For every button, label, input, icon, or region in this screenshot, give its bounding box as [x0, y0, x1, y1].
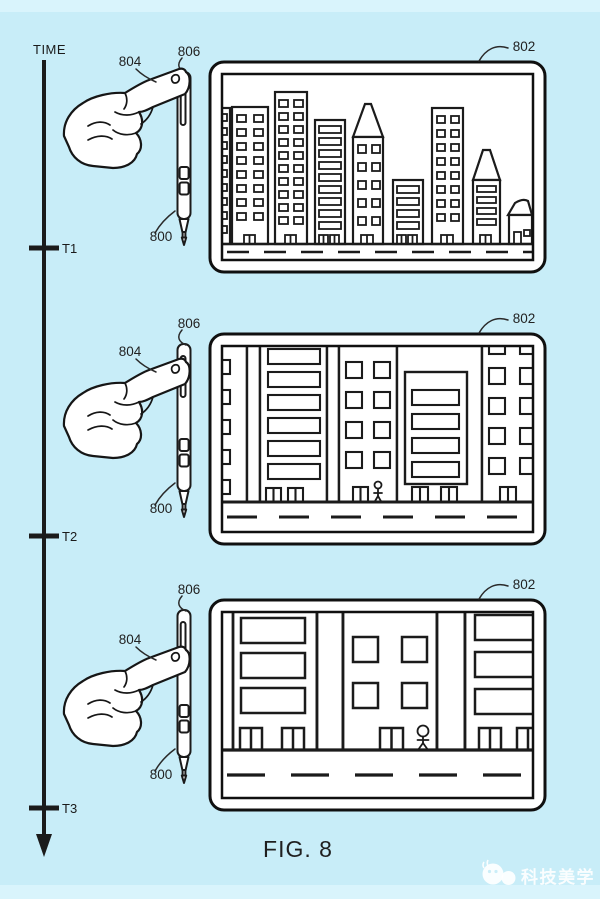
ref-804-hand: 804	[119, 632, 142, 647]
patent-figure-page: TIME T1 T2 T3	[0, 0, 600, 899]
ref-800-pen: 800	[150, 229, 173, 244]
building	[315, 120, 345, 244]
tick-label-t1: T1	[62, 241, 77, 256]
tick-label-t2: T2	[62, 529, 77, 544]
ref-806-pen-top: 806	[178, 316, 201, 331]
building-strip	[317, 606, 343, 750]
ref-800-pen: 800	[150, 501, 173, 516]
building	[432, 108, 463, 244]
building-strip	[327, 340, 339, 502]
ref-800-pen: 800	[150, 767, 173, 782]
ref-802-screen: 802	[513, 577, 536, 592]
building	[393, 180, 423, 244]
stylus-pen	[178, 610, 191, 783]
ref-806-pen-top: 806	[178, 44, 201, 59]
building	[260, 340, 327, 502]
building-strip	[437, 606, 465, 750]
building	[232, 107, 268, 244]
scene-city-mid	[216, 338, 537, 517]
building	[339, 340, 397, 502]
time-axis-label: TIME	[33, 42, 66, 57]
building-strip	[247, 340, 260, 502]
figure-title: FIG. 8	[263, 836, 333, 862]
watermark-text: 科技美学	[521, 867, 595, 887]
ref-806-pen-top: 806	[178, 582, 201, 597]
tablet-screen-t2	[216, 338, 537, 532]
tick-label-t3: T3	[62, 801, 77, 816]
building	[397, 340, 482, 502]
building	[275, 92, 307, 244]
ref-804-hand: 804	[119, 344, 142, 359]
bottom-edge-strip	[0, 885, 600, 899]
top-edge-strip	[0, 0, 600, 12]
scene-city-near	[222, 606, 539, 775]
ref-802-screen: 802	[513, 39, 536, 54]
figure-canvas: TIME T1 T2 T3	[0, 0, 600, 899]
ref-802-screen: 802	[513, 311, 536, 326]
building	[482, 338, 537, 502]
tower-pointed	[353, 104, 383, 244]
building	[465, 606, 539, 750]
building	[233, 606, 317, 750]
stylus-pen	[178, 72, 191, 245]
ref-804-hand: 804	[119, 54, 142, 69]
